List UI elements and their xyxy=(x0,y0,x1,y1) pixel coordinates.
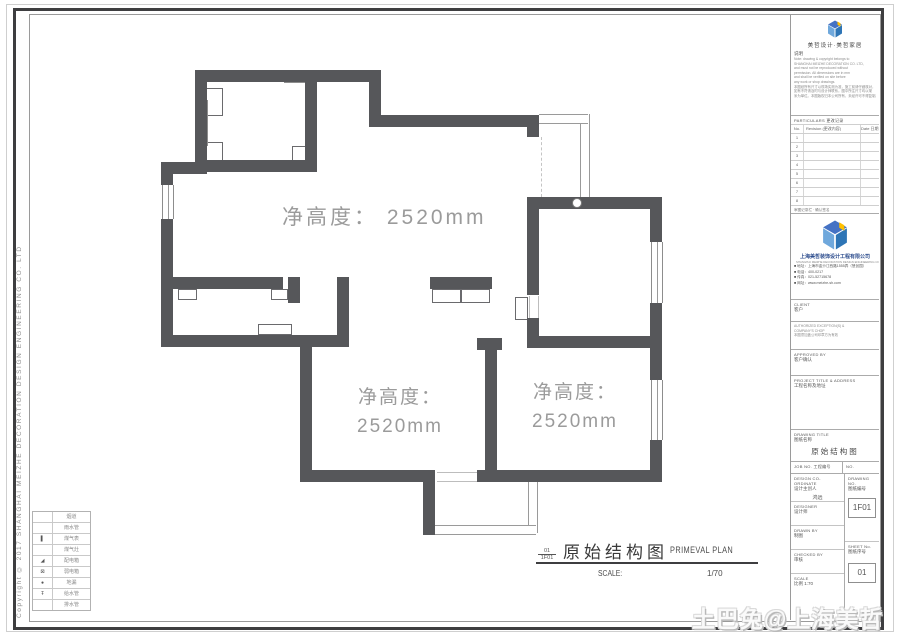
legend-label: 煤气灶 xyxy=(53,545,90,555)
checked-cell: CHECKED BY 审核 xyxy=(791,550,844,574)
revision-number: 2 xyxy=(791,143,804,151)
wall xyxy=(477,338,502,350)
revision-row: 4 xyxy=(791,160,879,169)
window xyxy=(651,380,663,440)
wall xyxy=(430,277,492,289)
company-contacts: ■ 地址：上海市金沙江西路1555弄（慧创园）■ 电话：400-0217■ 传真… xyxy=(794,264,876,286)
room-height-label: 净高度： 2520mm xyxy=(325,383,475,441)
wall xyxy=(161,219,173,347)
revision-row: 2 xyxy=(791,142,879,151)
revision-row: 3 xyxy=(791,151,879,160)
legend-symbol: ▌ xyxy=(33,534,53,544)
text-line: 米为单位。本图版权归本公司所有，未经许可不得复制。 xyxy=(794,94,876,99)
approved-cn: 客户确认 xyxy=(794,357,876,363)
wall xyxy=(650,348,662,380)
job-label: JOB NO. 工程编号 xyxy=(791,462,843,473)
revision-col-content: Revision (更改内容) xyxy=(804,125,861,133)
wall xyxy=(195,70,207,172)
revision-date xyxy=(861,161,879,169)
legend-label: 雨水管 xyxy=(53,523,90,533)
legend-row: Ŧ给水管 xyxy=(33,588,90,599)
company-logo-icon xyxy=(825,19,845,39)
legend-row: ▌煤气表 xyxy=(33,533,90,544)
revision-row: 6 xyxy=(791,178,879,187)
legend-symbol xyxy=(33,512,53,522)
wall xyxy=(485,338,497,482)
wall xyxy=(300,470,435,482)
wall xyxy=(195,70,381,82)
revision-row: 1 xyxy=(791,133,879,142)
notes-lines: Note: drawing & copyright belongs toSHAN… xyxy=(794,57,876,98)
brand-line: 美哲设计·美哲家居 xyxy=(794,41,876,49)
drawing-title-section: DRAWING TITLE 图纸名称 原始结构图 xyxy=(791,430,879,462)
chop-section: AUTHORIZED EXCEPTION(S) &COMPANY'S CHOP本… xyxy=(791,322,879,350)
scale-cell: SCALE 比例 1:70 xyxy=(791,574,844,598)
project-cn: 工程名称及地址 xyxy=(794,383,876,389)
legend-symbol: ⊠ xyxy=(33,567,53,577)
wall xyxy=(369,115,539,127)
legend-label: 配电箱 xyxy=(53,556,90,566)
wall xyxy=(527,336,662,348)
drawing-title-value: 原始结构图 xyxy=(794,446,876,457)
title-block: 美哲设计·美哲家居 说明 Note: drawing & copyright b… xyxy=(791,15,879,620)
legend-symbol xyxy=(33,600,53,610)
title-block-notes-section: 美哲设计·美哲家居 说明 Note: drawing & copyright b… xyxy=(791,15,879,116)
company-section: 上海美哲装饰设计工程有限公司 SHANGHAI MEIZHE DECORATIO… xyxy=(791,214,879,300)
legend-symbol xyxy=(33,523,53,533)
door-leaf-or-sill xyxy=(206,88,223,116)
drawing-title-en: PRIMEVAL PLAN xyxy=(670,545,733,555)
living-room-height-label: 净高度： 2520mm xyxy=(282,201,487,231)
room-height-line1: 净高度： xyxy=(500,378,650,407)
copyright-vertical-text: Copyright © 2017 SHANGHAI MEIZHE DECORAT… xyxy=(16,178,28,618)
legend-label: 排水管 xyxy=(53,600,90,610)
approved-section: APPROVED BY 客户确认 xyxy=(791,350,879,376)
legend-table: 烟道雨水管▌煤气表煤气灶◢配电箱⊠弱电箱●地漏Ŧ给水管排水管 xyxy=(32,511,91,611)
legend-symbol: Ŧ xyxy=(33,589,53,599)
door-opening xyxy=(437,472,477,482)
no-label: NO. xyxy=(843,462,879,473)
wall xyxy=(161,335,349,347)
wall xyxy=(369,82,381,127)
door-leaf-or-sill xyxy=(271,289,288,300)
revision-content xyxy=(804,179,861,187)
revision-row: 5 xyxy=(791,169,879,178)
room-height-label: 净高度： 2520mm xyxy=(500,378,650,436)
wall xyxy=(527,197,662,209)
door-leaf-or-sill xyxy=(515,297,528,320)
door-leaf-or-sill xyxy=(178,289,197,300)
wall xyxy=(288,277,300,303)
door-leaf-or-sill xyxy=(461,289,490,303)
legend-label: 煤气表 xyxy=(53,534,90,544)
project-section: PROJECT TITLE & ADDRESS 工程名称及地址 xyxy=(791,376,879,430)
text-line: ■ 地址：上海市金沙江西路1555弄（慧创园） xyxy=(794,264,876,270)
revision-date xyxy=(861,134,879,142)
coordinate-value: 鸿远 xyxy=(794,494,841,501)
drawing-ref-bottom: 1F01 xyxy=(538,555,556,561)
revision-number: 5 xyxy=(791,170,804,178)
title-underline xyxy=(536,562,758,564)
drawing-ref-top: 01 xyxy=(538,548,556,555)
client-section: CLIENT 客户 xyxy=(791,300,879,322)
drawing-title-cn: 原始结构图 xyxy=(563,538,668,563)
legend-label: 弱电箱 xyxy=(53,567,90,577)
wall xyxy=(650,303,662,348)
revision-date xyxy=(861,179,879,187)
scale-label: SCALE: xyxy=(598,569,622,578)
legend-row: ◢配电箱 xyxy=(33,555,90,566)
revision-content xyxy=(804,170,861,178)
drawing-title-bar: 01 1F01 原始结构图 PRIMEVAL PLAN SCALE: 1/70 xyxy=(534,538,764,586)
balcony-glazing xyxy=(429,525,536,535)
revision-number: 7 xyxy=(791,188,804,196)
drawing-sheet: Copyright © 2017 SHANGHAI MEIZHE DECORAT… xyxy=(0,0,900,636)
signature-grid: DESIGN CO-ORDINATE 设计主创人 鸿远 DESIGNER 设计师… xyxy=(791,474,879,621)
revision-number: 8 xyxy=(791,197,804,205)
revision-date xyxy=(861,188,879,196)
text-line: 本图须加盖公司印章方为有效 xyxy=(794,333,876,338)
revision-date xyxy=(861,152,879,160)
legend-row: ⊠弱电箱 xyxy=(33,566,90,577)
room-height-line2: 2520mm xyxy=(325,412,475,441)
balcony-glazing xyxy=(580,114,590,198)
revision-number: 3 xyxy=(791,152,804,160)
drawing-title-cn: 图纸名称 xyxy=(794,437,876,443)
legend-symbol: ◢ xyxy=(33,556,53,566)
wall xyxy=(300,345,312,482)
legend-row: 煤气灶 xyxy=(33,544,90,555)
revision-content xyxy=(804,143,861,151)
window xyxy=(162,185,174,219)
revision-number: 1 xyxy=(791,134,804,142)
coordinate-cell: DESIGN CO-ORDINATE 设计主创人 鸿远 xyxy=(791,474,844,502)
balcony-door-knob xyxy=(572,198,582,208)
revision-header: No. Revision (更改内容) Date 日期 xyxy=(791,124,879,133)
scale-value: 1/70 xyxy=(707,569,723,578)
legend-label: 给水管 xyxy=(53,589,90,599)
legend-symbol: ● xyxy=(33,578,53,588)
company-name-cn: 上海美哲装饰设计工程有限公司 xyxy=(794,253,876,260)
opening-dashed-line xyxy=(541,137,543,197)
wall xyxy=(195,160,317,172)
balcony-glazing xyxy=(539,114,588,124)
revision-number: 4 xyxy=(791,161,804,169)
client-cn: 客户 xyxy=(794,307,876,313)
door-leaf-or-sill xyxy=(258,324,292,335)
revision-col-no: No. xyxy=(791,125,804,133)
legend-symbol xyxy=(33,545,53,555)
door-leaf-or-sill xyxy=(432,289,461,303)
wall xyxy=(477,470,662,482)
revision-content xyxy=(804,152,861,160)
revision-col-date: Date 日期 xyxy=(861,125,879,133)
revision-date xyxy=(861,143,879,151)
drawing-ref-tag: 01 1F01 xyxy=(538,548,556,561)
revision-content xyxy=(804,188,861,196)
wall xyxy=(173,277,283,289)
wall xyxy=(305,82,317,172)
revision-section: PARTICULARS 更改记录 No. Revision (更改内容) Dat… xyxy=(791,116,879,214)
drawing-no-cell: DRAWING NO. 图纸编号 1F01 xyxy=(845,474,879,542)
drawn-cell: DRAWN BY 制图 xyxy=(791,526,844,550)
revision-date xyxy=(861,197,879,205)
room-height-line1: 净高度： xyxy=(325,383,475,412)
revision-row: 7 xyxy=(791,187,879,196)
room-height-line2: 2520mm xyxy=(500,407,650,436)
review-line: 审图记录栏 · 确认签名 xyxy=(791,205,879,214)
revision-content xyxy=(804,161,861,169)
wall xyxy=(527,197,539,295)
window xyxy=(651,242,663,303)
designer-cell: DESIGNER 设计师 xyxy=(791,502,844,526)
sheet-no-value: 01 xyxy=(848,563,876,583)
legend-label: 地漏 xyxy=(53,578,90,588)
legend-row: ●地漏 xyxy=(33,577,90,588)
legend-row: 烟道 xyxy=(33,512,90,522)
drawing-no-value: 1F01 xyxy=(848,498,876,518)
legend-label: 烟道 xyxy=(53,512,90,522)
wall xyxy=(161,174,173,185)
revision-date xyxy=(861,170,879,178)
revision-content xyxy=(804,134,861,142)
chop-lines: AUTHORIZED EXCEPTION(S) &COMPANY'S CHOP本… xyxy=(794,324,876,338)
revision-number: 6 xyxy=(791,179,804,187)
text-line: ■ 网址：www.meizhe-sh.com xyxy=(794,281,876,287)
company-logo-icon xyxy=(817,218,853,252)
revision-content xyxy=(804,197,861,205)
wall xyxy=(650,440,662,482)
revision-row: 8 xyxy=(791,196,879,205)
wall xyxy=(527,318,539,348)
revision-rows: 12345678 xyxy=(791,133,879,205)
door-opening xyxy=(529,296,539,318)
company-name-en: SHANGHAI MEIZHE DECORATION DESIGN ENGINE… xyxy=(796,260,874,264)
watermark: 土巴兔@上海美哲设计 xyxy=(692,600,900,636)
job-no-row: JOB NO. 工程编号 NO. xyxy=(791,462,879,474)
legend-row: 雨水管 xyxy=(33,522,90,533)
legend-row: 排水管 xyxy=(33,599,90,610)
